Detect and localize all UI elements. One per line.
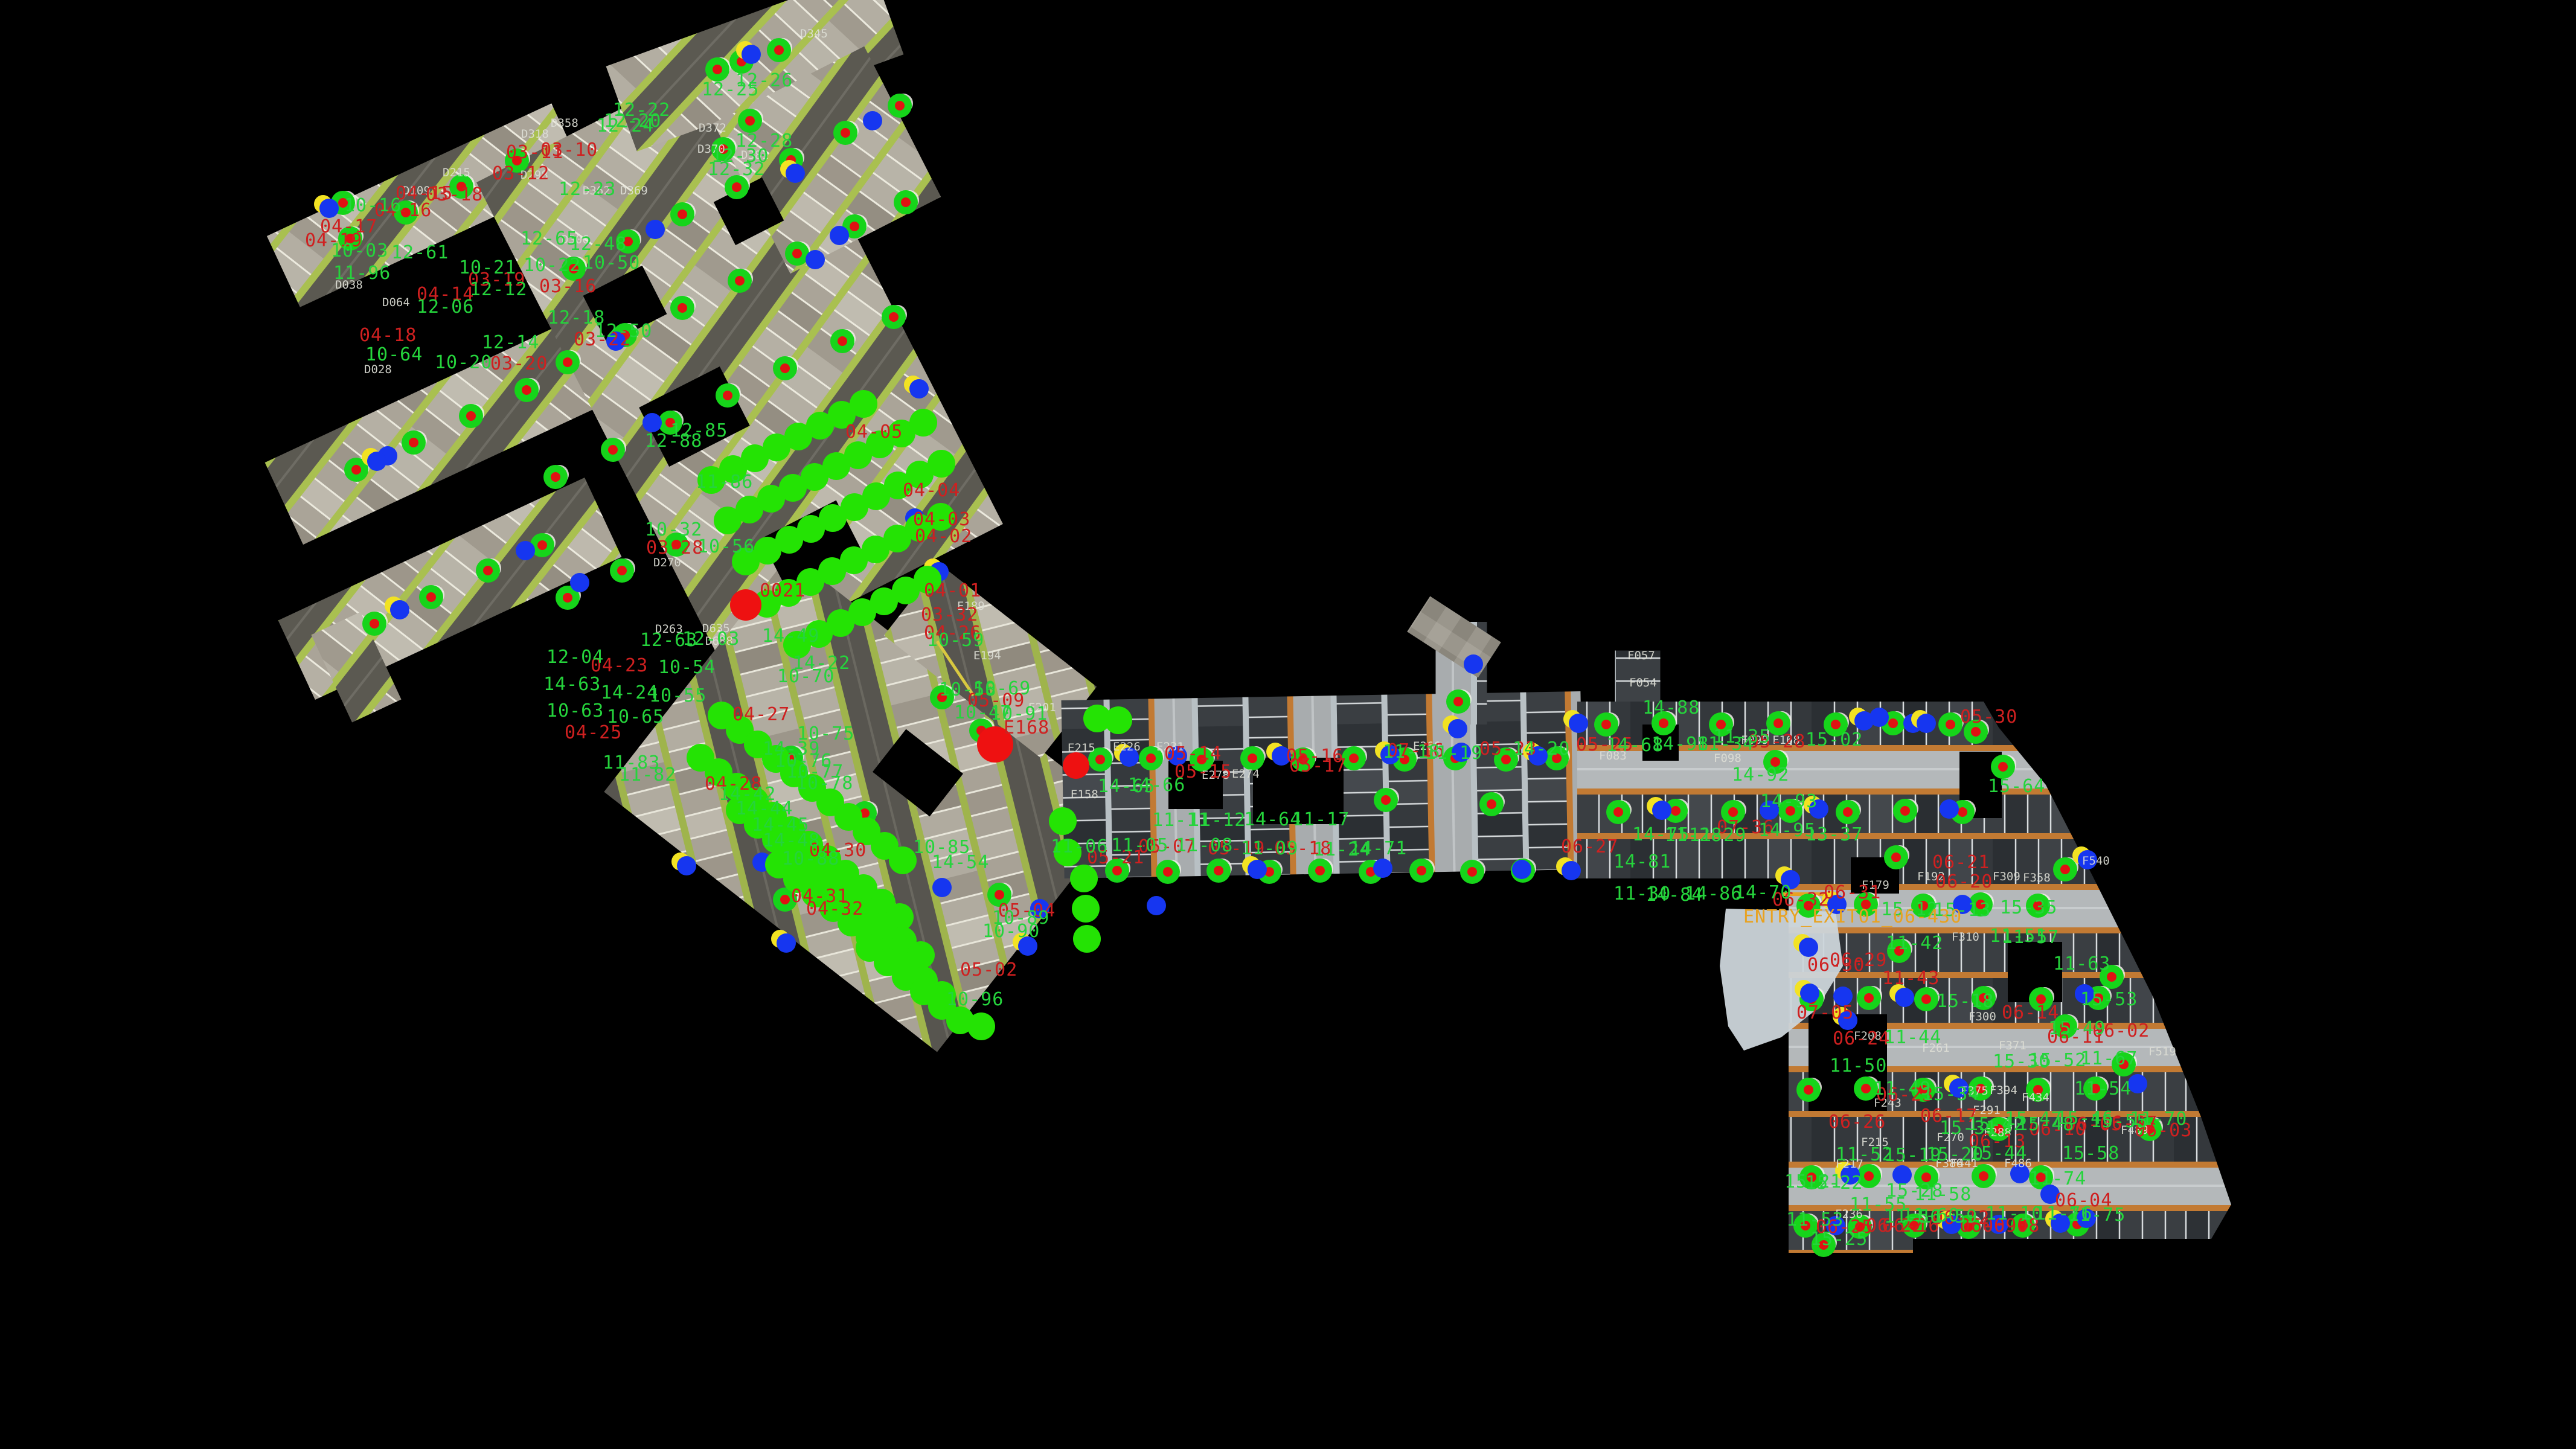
scan-label: 11-86 xyxy=(696,472,753,493)
stall-label: E158 xyxy=(1071,788,1098,801)
scan-label: 15-49 xyxy=(2048,1018,2106,1039)
scan-marker-blue[interactable] xyxy=(830,226,849,245)
scan-label: 15-64 xyxy=(1988,776,2045,797)
scan-label: 15-18 xyxy=(1937,991,1994,1012)
scan-marker-blue[interactable] xyxy=(1373,859,1392,878)
scan-label: 10-63 xyxy=(546,700,604,721)
scan-label: 07-05 xyxy=(1796,1002,1854,1023)
scan-marker-blue[interactable] xyxy=(806,250,825,269)
scan-label: 14-54 xyxy=(932,852,989,873)
scan-label: 11-58 xyxy=(1914,1184,1972,1205)
scan-marker-done[interactable] xyxy=(1070,865,1098,892)
scan-label: 12-50 xyxy=(595,321,652,342)
scan-label: 06-24 xyxy=(1833,1028,1890,1049)
scan-label: 06-20 xyxy=(1935,871,1993,892)
scan-label: 15-34 xyxy=(1922,1084,1979,1105)
scan-marker-done[interactable] xyxy=(928,450,955,478)
scan-label: 14-20 xyxy=(1513,738,1570,760)
stall-label: D064 xyxy=(382,296,410,309)
scan-label: 12-06 xyxy=(417,296,474,318)
scan-label: 10-88 xyxy=(782,848,839,869)
scan-label: 11-42 xyxy=(1886,933,1943,954)
stall-label: F519 xyxy=(2148,1045,2176,1058)
scan-label: 03-28 xyxy=(646,537,703,558)
scan-label: 13-37 xyxy=(1805,824,1863,845)
scan-label: 12-61 xyxy=(391,242,449,263)
scan-label: 04-02 xyxy=(915,526,972,547)
scan-label: 15-58 xyxy=(2062,1143,2119,1164)
scan-label: 10-64 xyxy=(365,344,423,365)
scan-label: 05-30 xyxy=(1960,706,2017,728)
scan-label: 15-53 xyxy=(2080,989,2138,1010)
scan-label: 10-91 xyxy=(990,703,1048,724)
scan-label: 12-04 xyxy=(546,647,604,668)
scan-marker-blue[interactable] xyxy=(1464,654,1483,674)
scan-label: 06-29 xyxy=(1830,950,1887,971)
scan-label: 11-76 xyxy=(2035,1203,2092,1224)
scan-label: 15-22 xyxy=(1805,1172,1863,1194)
scan-label: 14-92 xyxy=(1732,764,1789,785)
scan-label: 06-27 xyxy=(1561,836,1618,857)
scan-label: 03-20 xyxy=(490,353,548,374)
scan-label: 12-23 xyxy=(559,179,616,200)
scan-marker-done[interactable] xyxy=(1072,895,1100,923)
scan-label: 05-02 xyxy=(960,959,1017,980)
scan-label: 15-35 xyxy=(2000,897,2057,918)
scan-label: 10-69 xyxy=(973,678,1031,699)
scan-label: 11-08 xyxy=(1176,835,1233,856)
scan-label: 10-70 xyxy=(777,666,835,687)
scan-label: 03-12 xyxy=(492,163,549,184)
scan-label: 11-12 xyxy=(1188,810,1246,831)
scan-label: 14-93 xyxy=(1760,791,1818,812)
scan-label: 15-25 xyxy=(1810,1229,1868,1250)
stall-label: F057 xyxy=(1627,649,1655,662)
scan-label: 03-16 xyxy=(539,276,597,297)
scan-marker-blue[interactable] xyxy=(642,413,662,432)
scan-marker-blue[interactable] xyxy=(1940,799,1959,819)
scan-marker-red[interactable] xyxy=(1063,752,1089,779)
scan-marker-blue[interactable] xyxy=(1512,860,1531,879)
scan-marker-done[interactable] xyxy=(1104,706,1132,734)
scan-label: 12-26 xyxy=(735,70,793,91)
scan-label: 04-18 xyxy=(359,325,417,346)
scan-label: 11-44 xyxy=(1884,1027,1941,1048)
scan-marker-blue[interactable] xyxy=(863,111,882,130)
scan-label: 11-60 xyxy=(1902,1205,1959,1226)
scan-label: 11-43 xyxy=(1882,968,1940,989)
scan-label: 10-20 xyxy=(435,352,492,373)
stall-label: D215 xyxy=(443,166,470,179)
scan-label: 10-32 xyxy=(645,519,702,540)
scan-label: 14-71 xyxy=(1350,838,1407,859)
scan-label: 04-27 xyxy=(732,704,790,725)
stall-label: F358 xyxy=(2023,871,2051,884)
scan-label: 11-53 xyxy=(1786,1209,1844,1230)
scan-marker-blue[interactable] xyxy=(1147,896,1166,915)
scan-label: 11-05 xyxy=(1111,835,1168,856)
scan-label: 11-06 xyxy=(1051,836,1108,857)
scan-label: 06-26 xyxy=(1828,1112,1886,1133)
scan-label: 10-56 xyxy=(697,536,755,557)
stall-label: F394 xyxy=(1990,1084,2017,1097)
scan-label: 12-32 xyxy=(708,159,765,180)
scan-label: 14-88 xyxy=(1642,697,1700,718)
scan-marker-done[interactable] xyxy=(967,1012,995,1040)
scan-label: 11-57 xyxy=(2002,927,2059,948)
scan-label: 14-66 xyxy=(1128,775,1185,796)
scan-label: 14-49 xyxy=(762,625,819,647)
scan-label: 10-50 xyxy=(583,252,640,273)
stall-label: E274 xyxy=(1232,767,1260,781)
scan-label: 04-04 xyxy=(903,480,960,501)
scan-label: 15-48 xyxy=(2017,1114,2074,1135)
scan-label: 11-70 xyxy=(2130,1108,2187,1130)
stall-label: F054 xyxy=(1629,676,1657,689)
stall-label: E194 xyxy=(973,649,1001,662)
stall-label: D369 xyxy=(620,184,648,197)
stall-label: F540 xyxy=(2082,854,2110,868)
scan-label: 11-67 xyxy=(2080,1048,2138,1069)
pointcloud-map: D345D372D370D381D215D109D038D028D064D298… xyxy=(0,0,2576,1449)
scan-label: 04-05 xyxy=(845,421,903,443)
scan-marker-done[interactable] xyxy=(909,409,937,437)
scan-label: 10-96 xyxy=(946,989,1004,1010)
scan-label: 04-32 xyxy=(806,898,863,920)
scan-label: 10-55 xyxy=(649,685,706,706)
scan-marker-red[interactable] xyxy=(730,589,761,621)
entry-exit-label: ENTRY_EXIT01_06-430 xyxy=(1743,906,1962,927)
scan-label: 12-48 xyxy=(569,234,627,255)
stall-label: F371 xyxy=(1999,1039,2027,1052)
scan-label: 12-12 xyxy=(470,279,527,300)
scan-marker-done[interactable] xyxy=(850,390,877,418)
stall-label: D318 xyxy=(521,127,549,141)
stall-label: F434 xyxy=(2022,1091,2049,1104)
scan-label: 03-11 xyxy=(506,142,563,163)
scan-label: 11-29 xyxy=(1689,825,1746,846)
stall-label: D372 xyxy=(699,121,726,135)
scan-label: 10-16 xyxy=(344,195,402,216)
scan-label: 0021 xyxy=(760,580,806,601)
scan-label: 03-18 xyxy=(426,184,483,205)
scan-label: 11-35 xyxy=(1713,726,1770,747)
scan-label: 10-21 xyxy=(459,257,516,278)
scan-label: 11-17 xyxy=(1292,809,1350,830)
scan-label: 11-09 xyxy=(1241,838,1298,859)
stall-label: E226 xyxy=(1113,740,1141,753)
scan-label: 15-02 xyxy=(1805,729,1863,750)
stall-label: F310 xyxy=(1952,930,1979,944)
stall-label: D345 xyxy=(800,27,828,40)
scan-label: 10-78 xyxy=(796,773,853,794)
scan-label: 11-96 xyxy=(333,263,391,284)
stall-label: F300 xyxy=(1969,1010,1996,1023)
stall-label: E215 xyxy=(1068,741,1095,755)
pointcloud-viewport: D345D372D370D381D215D109D038D028D064D298… xyxy=(0,0,2576,1449)
scan-marker-done[interactable] xyxy=(1073,925,1101,953)
scan-label: 11-52 xyxy=(1836,1144,1893,1165)
scan-label: 12-24 xyxy=(597,115,654,136)
stall-label: F309 xyxy=(1993,870,2020,883)
scan-label: 14-70 xyxy=(1734,882,1792,903)
scan-label: 06-31 xyxy=(1824,882,1881,903)
scan-label: 11-19 xyxy=(1425,743,1482,764)
scan-marker-blue[interactable] xyxy=(570,573,589,592)
scan-label: 12-63 xyxy=(640,630,697,651)
scan-label: 06-21 xyxy=(1932,852,1990,873)
scan-label: 12-14 xyxy=(482,332,539,353)
scan-label: 14-63 xyxy=(543,674,601,695)
scan-label: 04-01 xyxy=(924,580,981,601)
scan-label: 12-88 xyxy=(645,430,702,452)
scan-label: 10-90 xyxy=(982,921,1040,942)
stall-label: D358 xyxy=(551,117,578,130)
scan-marker-blue[interactable] xyxy=(932,878,952,897)
scan-label: 05-17 xyxy=(1289,755,1347,776)
scan-label: 11-50 xyxy=(1830,1055,1887,1076)
scan-label: 11-63 xyxy=(2053,953,2110,974)
scan-marker-blue[interactable] xyxy=(646,220,665,239)
scan-label: 11-74 xyxy=(2029,1168,2086,1189)
scan-marker-blue[interactable] xyxy=(516,541,535,560)
scan-label: 10-22 xyxy=(524,255,581,276)
scan-label: 10-59 xyxy=(927,630,984,651)
scan-label: 14-75 xyxy=(1632,824,1690,845)
scan-label: 11-82 xyxy=(619,764,676,785)
scan-marker-done[interactable] xyxy=(1049,807,1077,835)
scan-label: 10-65 xyxy=(607,706,664,728)
scan-label: 10-03 xyxy=(331,240,388,261)
scan-label: 15-52 xyxy=(2029,1050,2086,1071)
scan-label: 11-54 xyxy=(2074,1078,2132,1099)
scan-label: 14-81 xyxy=(1613,851,1671,872)
scan-label: 10-54 xyxy=(658,657,716,678)
